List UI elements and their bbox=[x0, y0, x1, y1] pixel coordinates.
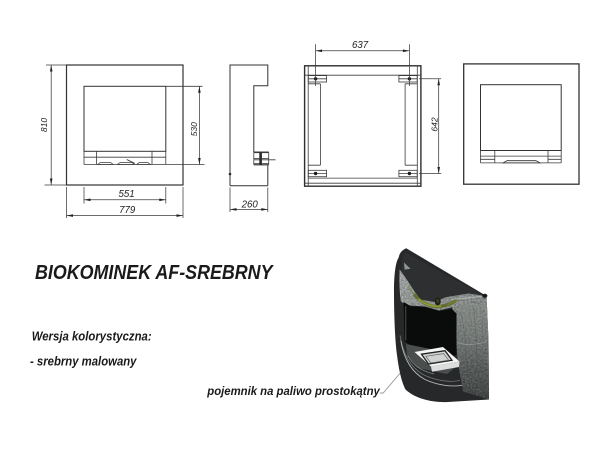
svg-text:810: 810 bbox=[39, 118, 49, 132]
svg-text:637: 637 bbox=[352, 40, 369, 51]
svg-text:530: 530 bbox=[189, 122, 199, 136]
svg-text:BIOKOMINEK AF-SREBRNY: BIOKOMINEK AF-SREBRNY bbox=[35, 261, 275, 284]
svg-text:260: 260 bbox=[241, 199, 259, 210]
svg-text:551: 551 bbox=[119, 189, 135, 200]
svg-text:pojemnik na paliwo prostokątny: pojemnik na paliwo prostokątny bbox=[206, 384, 381, 398]
svg-text:642: 642 bbox=[430, 117, 440, 131]
svg-text:779: 779 bbox=[119, 205, 136, 216]
svg-text:Wersja kolorystyczna:: Wersja kolorystyczna: bbox=[32, 329, 152, 344]
svg-text:- srebrny malowany: - srebrny malowany bbox=[30, 354, 137, 369]
